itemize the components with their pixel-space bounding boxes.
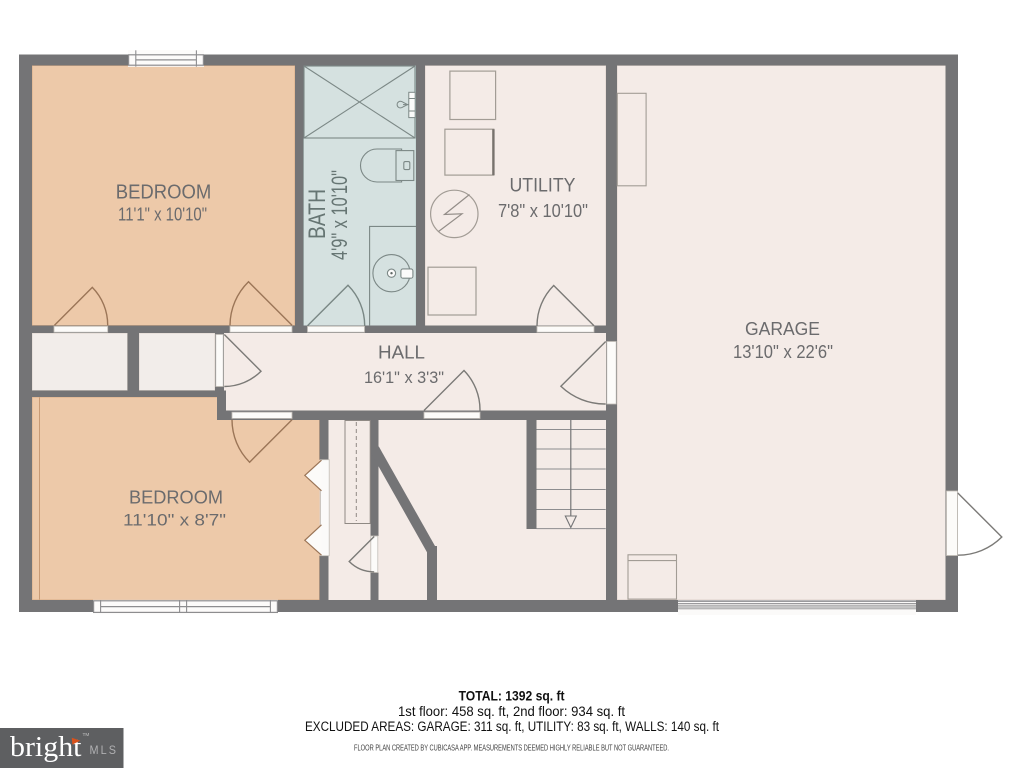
- svg-text:MLS: MLS: [90, 745, 119, 757]
- svg-text:11'1" x 10'10": 11'1" x 10'10": [118, 205, 207, 225]
- svg-text:16'1" x 3'3": 16'1" x 3'3": [364, 369, 444, 387]
- svg-text:7'8" x 10'10": 7'8" x 10'10": [498, 201, 588, 221]
- svg-text:TOTAL: 1392 sq. ft: TOTAL: 1392 sq. ft: [459, 689, 565, 704]
- svg-text:HALL: HALL: [378, 342, 425, 363]
- svg-text:FLOOR PLAN CREATED BY CUBICASA: FLOOR PLAN CREATED BY CUBICASA APP. MEAS…: [354, 743, 669, 752]
- svg-text:GARAGE: GARAGE: [745, 319, 820, 339]
- svg-text:UTILITY: UTILITY: [510, 175, 576, 197]
- svg-text:EXCLUDED AREAS: GARAGE: 311 sq: EXCLUDED AREAS: GARAGE: 311 sq. ft, UTIL…: [305, 719, 719, 734]
- svg-text:1st floor: 458 sq. ft, 2nd flo: 1st floor: 458 sq. ft, 2nd floor: 934 sq…: [398, 704, 625, 719]
- svg-text:11'10" x 8'7": 11'10" x 8'7": [123, 511, 226, 530]
- svg-text:BEDROOM: BEDROOM: [129, 488, 223, 508]
- svg-text:4'9" x 10'10": 4'9" x 10'10": [327, 170, 352, 260]
- svg-text:bright: bright: [10, 732, 82, 763]
- svg-text:13'10" x 22'6": 13'10" x 22'6": [733, 342, 833, 362]
- svg-text:TM: TM: [83, 732, 90, 738]
- svg-text:BEDROOM: BEDROOM: [116, 181, 212, 203]
